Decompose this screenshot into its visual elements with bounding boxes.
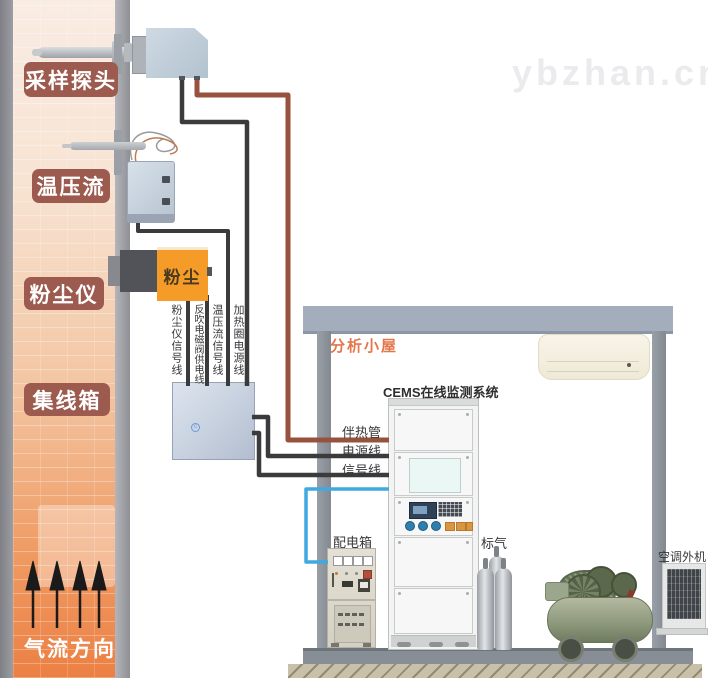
label-temp-pressure-flow: 温压流: [32, 169, 110, 203]
probe-tube: [38, 47, 138, 58]
label-heat-trace: 伴热管: [342, 422, 381, 441]
probe-tip: [32, 49, 42, 56]
label-standard-gas: 标气: [481, 533, 507, 552]
tpf-box-slot-2: [162, 198, 170, 205]
dust-flange: [120, 250, 158, 292]
tpf-box-slot-1: [162, 176, 170, 183]
label-tpf-signal-cable: 温压流信号线: [211, 304, 223, 434]
label-airflow-direction: 气流方向: [24, 633, 116, 663]
label-cems-system: CEMS在线监测系统: [383, 382, 499, 401]
tpf-box: [127, 161, 175, 223]
dust-body: 粉尘: [157, 247, 208, 301]
probe-body: [146, 28, 208, 78]
dust-meter-device: 粉尘: [106, 243, 210, 299]
tpf-pitot-tip: [62, 144, 72, 148]
label-ac-outdoor: 空调外机: [658, 548, 706, 565]
probe-connector-2: [194, 76, 200, 80]
probe-connector-1: [179, 76, 185, 80]
tpf-pitot-tube: [70, 142, 146, 150]
airflow-arrows: [26, 561, 106, 628]
label-sampling-probe: 采样探头: [24, 62, 118, 97]
label-shelter-title: 分析小屋: [330, 335, 398, 356]
label-dust-signal-cable: 粉尘仪信号线: [170, 304, 182, 434]
dust-body-label: 粉尘: [164, 263, 202, 288]
tpf-bracket: [114, 130, 122, 175]
tpf-box-base: [128, 214, 174, 222]
heat-trace-pipe: [197, 74, 389, 440]
label-dust-meter: 粉尘仪: [24, 277, 104, 310]
probe-collar-2: [124, 43, 132, 62]
label-signal-line: 信号线: [342, 460, 381, 479]
cems-system-diagram: ybzhan.cn: [0, 0, 708, 678]
label-heater-power-cable: 加热圈电源线: [232, 304, 244, 434]
blue-signal-wire: [306, 489, 389, 562]
label-blowback-power-cable: 反吹电磁阀供电线: [191, 304, 203, 434]
dust-body-nub: [207, 267, 212, 276]
label-power-box: 配电箱: [333, 532, 372, 551]
probe-flange: [132, 36, 148, 74]
label-junction-box: 集线箱: [24, 383, 110, 416]
label-power-line: 电源线: [342, 441, 381, 460]
